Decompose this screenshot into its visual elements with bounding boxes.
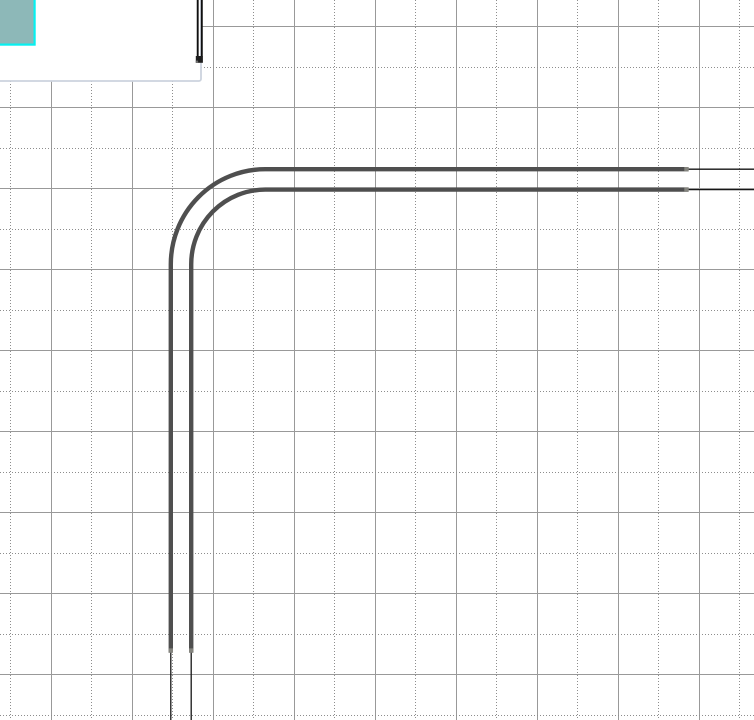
canvas-viewport	[0, 0, 754, 720]
teal-rectangle[interactable]	[0, 0, 35, 45]
drawing-canvas[interactable]	[0, 0, 754, 720]
grid-background[interactable]	[0, 0, 754, 720]
wall-endpoint-notch	[196, 61, 198, 63]
